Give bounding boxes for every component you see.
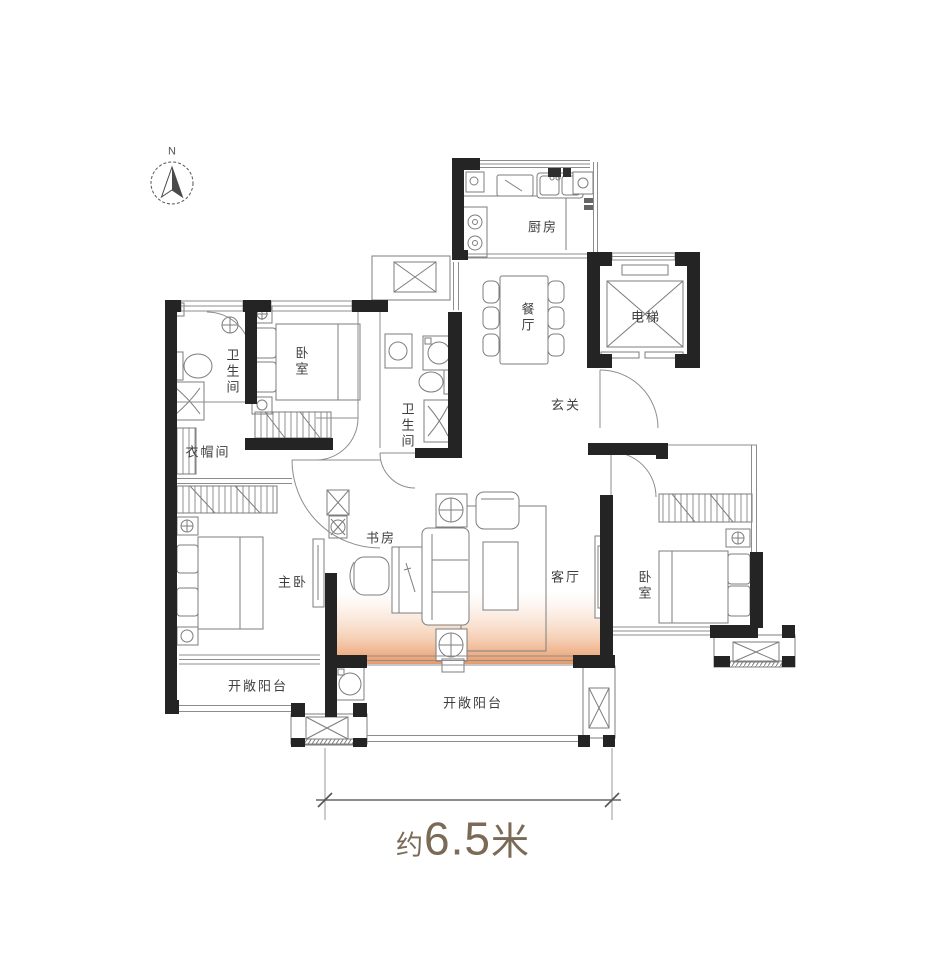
room-label-study: 书房: [366, 532, 396, 547]
room-label-bathroom2: 卫生间: [399, 402, 414, 450]
room-label-dining: 餐厅: [519, 302, 534, 334]
master-bedroom-furniture-icon: [177, 486, 349, 645]
room-label-elevator: 电梯: [631, 311, 661, 326]
open-living-highlight: [337, 592, 613, 664]
room-label-balcony-left: 开敞阳台: [228, 680, 288, 695]
dimension-unit: 米: [491, 811, 530, 866]
bedroom2-furniture-icon: [659, 494, 752, 623]
dimension-value: 6.5: [424, 812, 491, 866]
room-label-bathroom1: 卫生间: [224, 348, 239, 396]
room-label-balcony-bottom: 开敞阳台: [443, 697, 503, 712]
floor-plan: N 厨房 餐厅 电梯 玄关 卫生间 卧室 衣帽间 卫生间 主卧 书房 客厅 卧室…: [0, 0, 952, 969]
room-label-master-bedroom: 主卧: [278, 576, 308, 591]
room-label-bedroom1: 卧室: [293, 346, 308, 378]
room-label-kitchen: 厨房: [528, 221, 558, 236]
kitchen-fixtures-icon: [463, 167, 593, 257]
width-dimension-label: 约6.5米: [396, 811, 530, 866]
room-label-cloakroom: 衣帽间: [185, 446, 230, 461]
room-label-foyer: 玄关: [551, 399, 581, 414]
dimension-line: [316, 748, 621, 820]
north-arrow-icon: [151, 162, 193, 204]
room-label-living-room: 客厅: [551, 571, 581, 586]
room-label-bedroom2: 卧室: [636, 570, 651, 602]
washing-machine-icon: [336, 667, 364, 700]
bathroom2-fixtures-icon: [385, 334, 455, 442]
dimension-approx-prefix: 约: [396, 824, 424, 863]
north-label: N: [168, 146, 176, 159]
